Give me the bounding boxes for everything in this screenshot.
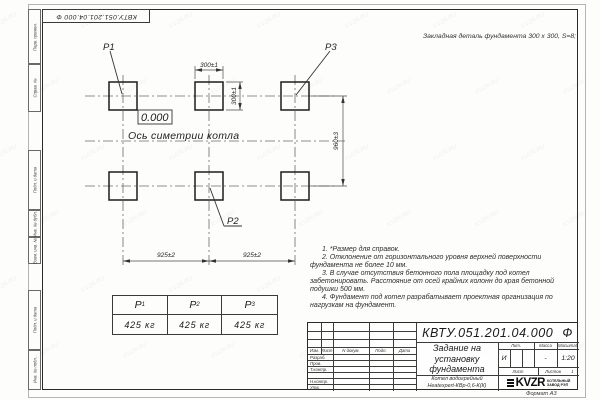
load-table-header-p2: P2 [168, 296, 223, 315]
note-1: 1. *Размер для справок. [310, 246, 562, 254]
arrow [202, 259, 209, 262]
listov-label: Листов [538, 367, 568, 375]
note-4: 4. Фундамент под котел разрабатывает про… [310, 294, 562, 310]
title-line: Задание на [416, 343, 498, 354]
listov-value: 1 [566, 367, 579, 375]
grid-line [522, 349, 523, 367]
dim-925-left-label: 925±2 [157, 252, 175, 259]
document-title: Задание на установку фундамента [416, 343, 498, 375]
row-tkontr: Т.контр. [308, 366, 335, 372]
col-list: Лист [321, 347, 333, 354]
load-table: P1 P2 P3 425 кг 425 кг 425 кг [112, 295, 278, 335]
doc-number-text: КВТУ.051.201.04.000 [422, 326, 553, 340]
dim-300-width-label: 300±1 [200, 62, 218, 69]
symmetry-axis-label: Ось симетрии котла [128, 130, 239, 142]
doc-suffix: Ф [562, 326, 573, 340]
scale-label: Масштаб [557, 342, 579, 349]
load-value-p1: 425 кг [113, 315, 168, 334]
grid-line [510, 349, 511, 367]
lit-label: Лит. [498, 342, 534, 349]
technical-notes: 1. *Размер для справок. 2. Отклонение от… [310, 246, 562, 310]
header-sub: 2 [196, 302, 199, 308]
label-p2: P2 [227, 216, 239, 227]
col-data: Дата [393, 347, 416, 354]
scale-value: 1:20 [557, 349, 579, 367]
arrow [238, 82, 241, 89]
arrow [238, 103, 241, 110]
drawing-sheet: KVZR.RUKVZR.RUKVZR.RUKVZR.RUKVZR.RUKVZR.… [0, 0, 600, 400]
lit-value: И [498, 349, 510, 367]
product-name: Котел водогрейный Heatexpert-КВр-0,6-К(К… [416, 376, 498, 390]
product-line: Котел водогрейный [416, 376, 498, 383]
title-line: фундамента [416, 364, 498, 375]
product-line: Heatexpert-КВр-0,6-К(К) [416, 383, 498, 390]
logo-bars-icon [507, 379, 514, 387]
title-line: установку [416, 354, 498, 365]
grid-line [393, 323, 394, 391]
header-sub: 1 [142, 302, 145, 308]
grid-line [308, 331, 416, 332]
grid-line [369, 323, 370, 391]
format-label: Формат А3 [526, 391, 557, 397]
massa-label: Масса [534, 342, 557, 349]
dim-960-label: 960±3 [333, 132, 340, 150]
manufacturer-logo: KVZR КОТЕЛЬНЫЙ ЗАВОД РЭП [498, 375, 579, 391]
level-mark: 0.000 [141, 112, 169, 124]
col-podp: Подп. [369, 347, 393, 354]
label-p3: P3 [325, 42, 337, 53]
arrow [123, 259, 130, 262]
grid-line [308, 372, 416, 373]
arrow [341, 96, 344, 103]
arrow [341, 179, 344, 186]
logo-text: KVZR [516, 377, 545, 389]
leader-p3 [296, 51, 330, 95]
load-table-header-p1: P1 [113, 296, 168, 315]
row-utv: Утв. [308, 384, 335, 390]
load-table-header-p3: P3 [222, 296, 277, 315]
document-number: КВТУ.051.201.04.000 Ф [416, 323, 579, 342]
note-2: 2. Отклонение от горизонтального уровня … [310, 254, 562, 270]
leader-p1 [110, 51, 122, 94]
header-sub: 3 [252, 302, 255, 308]
center-lines [85, 75, 345, 266]
list-label: Лист [498, 367, 538, 375]
load-value-p2: 425 кг [168, 315, 223, 334]
arrow [209, 259, 216, 262]
header-base: P [135, 299, 142, 311]
grid-line [308, 339, 416, 340]
note-3: 3. В случае отсутствия бетонного пола пл… [310, 270, 562, 294]
title-block: Изм. Лист N докум. Подп. Дата Разраб. Пр… [307, 322, 578, 390]
massa-value: - [534, 349, 557, 367]
dim-925-right-label: 925±2 [243, 252, 261, 259]
org-name: КОТЕЛЬНЫЙ ЗАВОД РЭП [547, 379, 570, 387]
leader-p2 [210, 188, 224, 226]
arrow [288, 259, 295, 262]
load-value-p3: 425 кг [222, 315, 277, 334]
org-line: ЗАВОД РЭП [547, 383, 570, 387]
label-p1: P1 [103, 42, 115, 53]
dim-300-height-label: 300±1 [231, 87, 238, 105]
col-izm: Изм. [308, 347, 321, 354]
header-base: P [244, 299, 251, 311]
col-ndokum: N докум. [333, 347, 369, 354]
